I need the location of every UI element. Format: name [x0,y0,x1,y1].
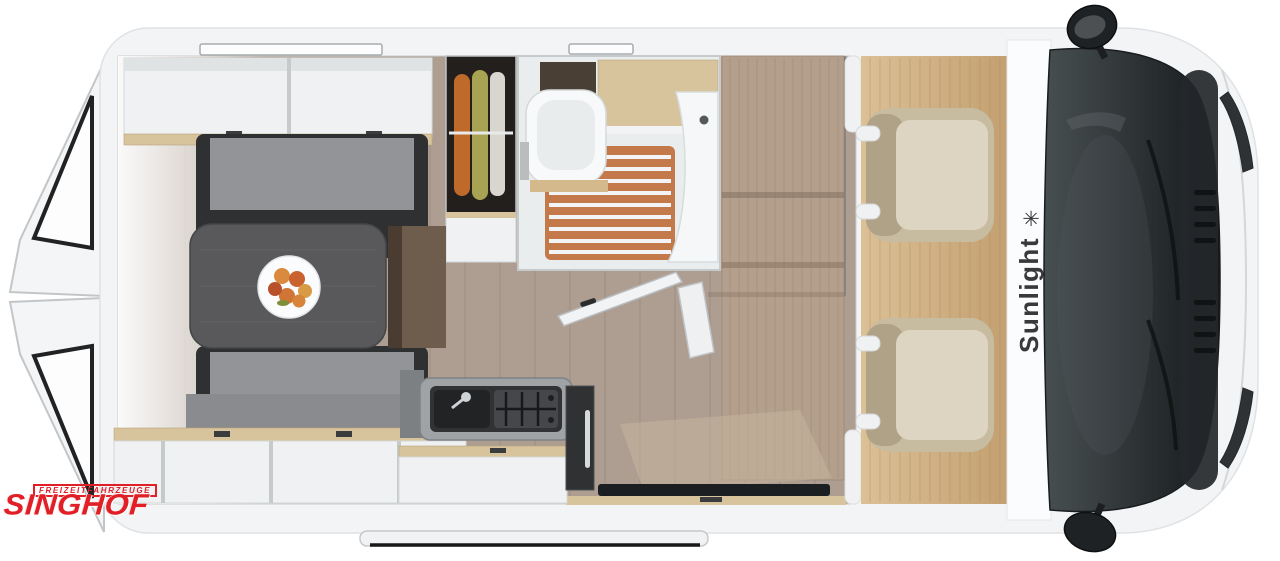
fruit-plate [258,256,320,318]
driver-seat [856,108,994,242]
dealer-wordmark: SINGHOF [3,488,150,522]
passenger-seat [856,318,994,452]
windshield [1044,48,1220,511]
toilet [526,90,608,192]
kitchen-hob [494,390,558,428]
kitchen-unit [400,370,572,440]
wardrobe-base-cabinet [446,216,516,262]
camper-floorplan-image: Sunlight ✳ FREIZEITFAHRZEUGE SINGHOF [0,0,1280,561]
cowl-band [1180,70,1218,490]
window-rear-wall [200,44,382,55]
window-bathroom-wall [569,44,633,54]
sunlight-logo-star-icon: ✳ [1022,207,1040,231]
kitchen-sink [434,390,490,428]
wardrobe-clothes-olive [472,70,488,200]
wardrobe [446,56,516,262]
sunlight-wordmark: Sunlight [1014,237,1044,353]
rear-door-top-open [10,62,104,296]
toilet-cistern [540,62,596,94]
toilet-step [530,180,608,192]
dealer-logo: FREIZEITFAHRZEUGE SINGHOF [2,480,192,540]
bathroom [518,56,720,270]
floorplan-canvas: Sunlight ✳ [0,0,1280,561]
wardrobe-clothes-orange [454,74,470,196]
refrigerator [566,386,594,490]
entry-step [598,484,830,496]
kitchen-counter-cabinet [399,446,567,503]
sink-faucet [700,116,709,125]
refrigerator-handle [585,410,590,468]
overhead-cabinet-top [124,58,432,145]
dinette-bench-bottom [186,346,436,440]
sliding-door-open [360,531,708,546]
bathroom-wall-fitting [520,142,529,180]
threshold-handle [700,497,722,502]
